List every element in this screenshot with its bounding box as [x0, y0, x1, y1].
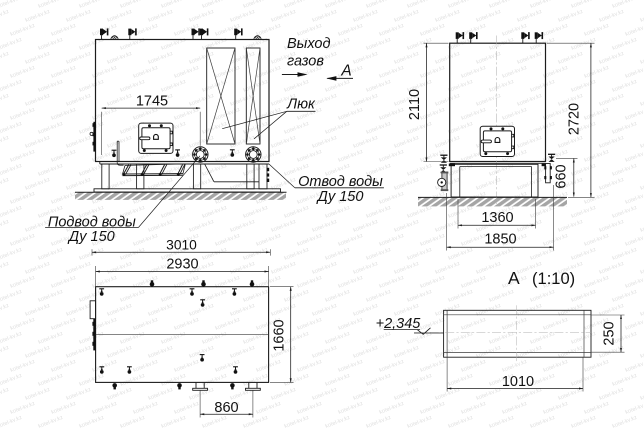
svg-text:kotel-kv.kz: kotel-kv.kz [435, 135, 462, 150]
svg-text:kotel-kv.kz: kotel-kv.kz [284, 373, 311, 388]
svg-text:860: 860 [214, 400, 238, 416]
svg-text:kotel-kv.kz: kotel-kv.kz [66, 9, 93, 24]
svg-text:kotel-kv.kz: kotel-kv.kz [640, 303, 644, 318]
svg-text:kotel-kv.kz: kotel-kv.kz [325, 247, 352, 262]
svg-text:kotel-kv.kz: kotel-kv.kz [625, 149, 644, 164]
svg-text:kotel-kv.kz: kotel-kv.kz [325, 331, 352, 346]
svg-text:kotel-kv.kz: kotel-kv.kz [133, 401, 160, 416]
svg-text:kotel-kv.kz: kotel-kv.kz [435, 261, 462, 276]
svg-text:kotel-kv.kz: kotel-kv.kz [189, 93, 216, 108]
svg-text:kotel-kv.kz: kotel-kv.kz [571, 79, 598, 94]
svg-text:kotel-kv.kz: kotel-kv.kz [338, 107, 365, 122]
svg-text:kotel-kv.kz: kotel-kv.kz [435, 51, 462, 66]
svg-text:kotel-kv.kz: kotel-kv.kz [0, 205, 23, 220]
svg-text:kotel-kv.kz: kotel-kv.kz [530, 37, 557, 52]
svg-text:kotel-kv.kz: kotel-kv.kz [174, 317, 201, 332]
svg-text:kotel-kv.kz: kotel-kv.kz [202, 415, 229, 430]
svg-text:kotel-kv.kz: kotel-kv.kz [161, 79, 188, 94]
svg-text:kotel-kv.kz: kotel-kv.kz [558, 219, 585, 234]
svg-text:kotel-kv.kz: kotel-kv.kz [202, 0, 229, 10]
svg-text:kotel-kv.kz: kotel-kv.kz [420, 107, 447, 122]
svg-text:kotel-kv.kz: kotel-kv.kz [448, 121, 475, 136]
svg-text:Выход: Выход [287, 36, 331, 52]
svg-text:kotel-kv.kz: kotel-kv.kz [0, 415, 23, 430]
svg-text:kotel-kv.kz: kotel-kv.kz [489, 331, 516, 346]
svg-text:kotel-kv.kz: kotel-kv.kz [25, 9, 52, 24]
svg-text:kotel-kv.kz: kotel-kv.kz [284, 247, 311, 262]
svg-text:kotel-kv.kz: kotel-kv.kz [312, 135, 339, 150]
svg-text:kotel-kv.kz: kotel-kv.kz [530, 415, 557, 430]
svg-text:kotel-kv.kz: kotel-kv.kz [543, 359, 570, 374]
svg-text:kotel-kv.kz: kotel-kv.kz [284, 331, 311, 346]
svg-text:kotel-kv.kz: kotel-kv.kz [366, 79, 393, 94]
svg-text:kotel-kv.kz: kotel-kv.kz [394, 9, 421, 24]
svg-text:kotel-kv.kz: kotel-kv.kz [312, 345, 339, 360]
svg-text:kotel-kv.kz: kotel-kv.kz [284, 79, 311, 94]
svg-text:kotel-kv.kz: kotel-kv.kz [243, 289, 270, 304]
svg-text:kotel-kv.kz: kotel-kv.kz [476, 51, 503, 66]
svg-text:kotel-kv.kz: kotel-kv.kz [0, 303, 10, 318]
svg-text:kotel-kv.kz: kotel-kv.kz [312, 303, 339, 318]
svg-text:1850: 1850 [484, 232, 516, 248]
svg-text:kotel-kv.kz: kotel-kv.kz [148, 345, 175, 360]
svg-text:kotel-kv.kz: kotel-kv.kz [10, 317, 37, 332]
svg-text:kotel-kv.kz: kotel-kv.kz [312, 387, 339, 402]
svg-text:kotel-kv.kz: kotel-kv.kz [435, 9, 462, 24]
svg-text:kotel-kv.kz: kotel-kv.kz [640, 387, 644, 402]
svg-text:kotel-kv.kz: kotel-kv.kz [38, 163, 65, 178]
svg-text:kotel-kv.kz: kotel-kv.kz [230, 303, 257, 318]
svg-text:kotel-kv.kz: kotel-kv.kz [448, 289, 475, 304]
svg-text:kotel-kv.kz: kotel-kv.kz [284, 415, 311, 430]
svg-text:kotel-kv.kz: kotel-kv.kz [189, 9, 216, 24]
svg-text:kotel-kv.kz: kotel-kv.kz [133, 275, 160, 290]
svg-text:kotel-kv.kz: kotel-kv.kz [174, 359, 201, 374]
svg-text:kotel-kv.kz: kotel-kv.kz [202, 79, 229, 94]
svg-text:kotel-kv.kz: kotel-kv.kz [10, 149, 37, 164]
svg-text:kotel-kv.kz: kotel-kv.kz [230, 261, 257, 276]
svg-text:kotel-kv.kz: kotel-kv.kz [325, 79, 352, 94]
svg-text:kotel-kv.kz: kotel-kv.kz [640, 135, 644, 150]
svg-text:kotel-kv.kz: kotel-kv.kz [571, 289, 598, 304]
svg-text:kotel-kv.kz: kotel-kv.kz [107, 9, 134, 24]
svg-text:1745: 1745 [136, 93, 168, 109]
svg-text:kotel-kv.kz: kotel-kv.kz [448, 79, 475, 94]
svg-text:kotel-kv.kz: kotel-kv.kz [79, 331, 106, 346]
svg-text:kotel-kv.kz: kotel-kv.kz [25, 261, 52, 276]
svg-text:kotel-kv.kz: kotel-kv.kz [51, 107, 78, 122]
svg-text:kotel-kv.kz: kotel-kv.kz [189, 177, 216, 192]
svg-text:kotel-kv.kz: kotel-kv.kz [230, 177, 257, 192]
svg-text:kotel-kv.kz: kotel-kv.kz [79, 163, 106, 178]
svg-text:kotel-kv.kz: kotel-kv.kz [271, 387, 298, 402]
svg-text:kotel-kv.kz: kotel-kv.kz [256, 233, 283, 248]
svg-text:kotel-kv.kz: kotel-kv.kz [625, 107, 644, 122]
svg-text:kotel-kv.kz: kotel-kv.kz [25, 177, 52, 192]
svg-text:kotel-kv.kz: kotel-kv.kz [161, 205, 188, 220]
svg-text:kotel-kv.kz: kotel-kv.kz [558, 9, 585, 24]
svg-text:kotel-kv.kz: kotel-kv.kz [571, 37, 598, 52]
svg-text:kotel-kv.kz: kotel-kv.kz [79, 79, 106, 94]
svg-text:kotel-kv.kz: kotel-kv.kz [230, 345, 257, 360]
svg-text:kotel-kv.kz: kotel-kv.kz [107, 345, 134, 360]
svg-text:kotel-kv.kz: kotel-kv.kz [379, 275, 406, 290]
svg-text:kotel-kv.kz: kotel-kv.kz [0, 51, 10, 66]
svg-text:kotel-kv.kz: kotel-kv.kz [353, 219, 380, 234]
svg-text:kotel-kv.kz: kotel-kv.kz [543, 149, 570, 164]
svg-text:kotel-kv.kz: kotel-kv.kz [10, 401, 37, 416]
svg-text:1660: 1660 [271, 319, 287, 351]
svg-text:kotel-kv.kz: kotel-kv.kz [38, 121, 65, 136]
svg-text:kotel-kv.kz: kotel-kv.kz [107, 303, 134, 318]
svg-text:kotel-kv.kz: kotel-kv.kz [284, 205, 311, 220]
svg-text:kotel-kv.kz: kotel-kv.kz [271, 177, 298, 192]
svg-text:kotel-kv.kz: kotel-kv.kz [584, 23, 611, 38]
svg-text:kotel-kv.kz: kotel-kv.kz [571, 163, 598, 178]
svg-text:kotel-kv.kz: kotel-kv.kz [38, 331, 65, 346]
svg-text:kotel-kv.kz: kotel-kv.kz [79, 373, 106, 388]
svg-text:kotel-kv.kz: kotel-kv.kz [599, 135, 626, 150]
svg-text:kotel-kv.kz: kotel-kv.kz [297, 275, 324, 290]
svg-text:kotel-kv.kz: kotel-kv.kz [10, 107, 37, 122]
svg-text:kotel-kv.kz: kotel-kv.kz [379, 233, 406, 248]
svg-text:kotel-kv.kz: kotel-kv.kz [243, 373, 270, 388]
svg-text:kotel-kv.kz: kotel-kv.kz [161, 0, 188, 10]
svg-text:kotel-kv.kz: kotel-kv.kz [394, 177, 421, 192]
svg-text:kotel-kv.kz: kotel-kv.kz [0, 219, 10, 234]
svg-text:kotel-kv.kz: kotel-kv.kz [461, 275, 488, 290]
svg-text:kotel-kv.kz: kotel-kv.kz [25, 387, 52, 402]
svg-text:kotel-kv.kz: kotel-kv.kz [51, 401, 78, 416]
svg-text:kotel-kv.kz: kotel-kv.kz [640, 51, 644, 66]
svg-text:kotel-kv.kz: kotel-kv.kz [66, 387, 93, 402]
svg-text:kotel-kv.kz: kotel-kv.kz [0, 331, 23, 346]
svg-text:kotel-kv.kz: kotel-kv.kz [215, 317, 242, 332]
svg-text:kotel-kv.kz: kotel-kv.kz [394, 261, 421, 276]
svg-text:660: 660 [554, 164, 570, 188]
svg-text:kotel-kv.kz: kotel-kv.kz [517, 51, 544, 66]
svg-text:kotel-kv.kz: kotel-kv.kz [530, 331, 557, 346]
svg-text:kotel-kv.kz: kotel-kv.kz [202, 289, 229, 304]
svg-text:kotel-kv.kz: kotel-kv.kz [148, 219, 175, 234]
svg-text:kotel-kv.kz: kotel-kv.kz [271, 261, 298, 276]
svg-text:kotel-kv.kz: kotel-kv.kz [435, 387, 462, 402]
svg-text:kotel-kv.kz: kotel-kv.kz [38, 79, 65, 94]
svg-text:kotel-kv.kz: kotel-kv.kz [271, 219, 298, 234]
svg-text:kotel-kv.kz: kotel-kv.kz [312, 261, 339, 276]
svg-text:kotel-kv.kz: kotel-kv.kz [25, 93, 52, 108]
svg-text:kotel-kv.kz: kotel-kv.kz [120, 331, 147, 346]
svg-text:kotel-kv.kz: kotel-kv.kz [599, 177, 626, 192]
svg-text:kotel-kv.kz: kotel-kv.kz [571, 415, 598, 430]
svg-text:kotel-kv.kz: kotel-kv.kz [107, 51, 134, 66]
svg-text:kotel-kv.kz: kotel-kv.kz [120, 247, 147, 262]
svg-text:kotel-kv.kz: kotel-kv.kz [353, 261, 380, 276]
svg-text:kotel-kv.kz: kotel-kv.kz [625, 191, 644, 206]
svg-text:kotel-kv.kz: kotel-kv.kz [584, 107, 611, 122]
svg-text:kotel-kv.kz: kotel-kv.kz [133, 65, 160, 80]
svg-text:kotel-kv.kz: kotel-kv.kz [51, 65, 78, 80]
svg-text:kotel-kv.kz: kotel-kv.kz [325, 205, 352, 220]
svg-text:kotel-kv.kz: kotel-kv.kz [0, 0, 23, 10]
svg-text:kotel-kv.kz: kotel-kv.kz [476, 261, 503, 276]
svg-text:kotel-kv.kz: kotel-kv.kz [66, 51, 93, 66]
svg-text:kotel-kv.kz: kotel-kv.kz [256, 401, 283, 416]
svg-text:kotel-kv.kz: kotel-kv.kz [599, 51, 626, 66]
svg-text:kotel-kv.kz: kotel-kv.kz [379, 65, 406, 80]
svg-text:kotel-kv.kz: kotel-kv.kz [435, 93, 462, 108]
svg-text:kotel-kv.kz: kotel-kv.kz [79, 415, 106, 430]
svg-text:kotel-kv.kz: kotel-kv.kz [38, 415, 65, 430]
svg-text:kotel-kv.kz: kotel-kv.kz [92, 401, 119, 416]
svg-text:kotel-kv.kz: kotel-kv.kz [407, 247, 434, 262]
svg-text:kotel-kv.kz: kotel-kv.kz [571, 373, 598, 388]
svg-text:kotel-kv.kz: kotel-kv.kz [502, 107, 529, 122]
svg-text:kotel-kv.kz: kotel-kv.kz [10, 65, 37, 80]
svg-text:kotel-kv.kz: kotel-kv.kz [517, 9, 544, 24]
svg-text:kotel-kv.kz: kotel-kv.kz [148, 9, 175, 24]
svg-text:kotel-kv.kz: kotel-kv.kz [461, 233, 488, 248]
svg-text:2720: 2720 [567, 103, 583, 135]
svg-text:kotel-kv.kz: kotel-kv.kz [543, 65, 570, 80]
svg-text:kotel-kv.kz: kotel-kv.kz [120, 0, 147, 10]
svg-text:kotel-kv.kz: kotel-kv.kz [256, 23, 283, 38]
svg-text:kotel-kv.kz: kotel-kv.kz [584, 401, 611, 416]
svg-text:kotel-kv.kz: kotel-kv.kz [379, 23, 406, 38]
svg-text:kotel-kv.kz: kotel-kv.kz [202, 247, 229, 262]
svg-text:kotel-kv.kz: kotel-kv.kz [448, 373, 475, 388]
svg-text:kotel-kv.kz: kotel-kv.kz [640, 93, 644, 108]
svg-text:kotel-kv.kz: kotel-kv.kz [174, 401, 201, 416]
svg-text:kotel-kv.kz: kotel-kv.kz [79, 121, 106, 136]
svg-text:kotel-kv.kz: kotel-kv.kz [517, 177, 544, 192]
svg-text:kotel-kv.kz: kotel-kv.kz [297, 233, 324, 248]
svg-text:kotel-kv.kz: kotel-kv.kz [640, 177, 644, 192]
svg-text:kotel-kv.kz: kotel-kv.kz [584, 65, 611, 80]
svg-text:kotel-kv.kz: kotel-kv.kz [0, 373, 23, 388]
svg-text:kotel-kv.kz: kotel-kv.kz [420, 317, 447, 332]
svg-text:kotel-kv.kz: kotel-kv.kz [571, 247, 598, 262]
svg-text:kotel-kv.kz: kotel-kv.kz [502, 317, 529, 332]
svg-text:1010: 1010 [502, 374, 534, 390]
svg-text:kotel-kv.kz: kotel-kv.kz [517, 219, 544, 234]
svg-text:kotel-kv.kz: kotel-kv.kz [0, 37, 23, 52]
svg-text:kotel-kv.kz: kotel-kv.kz [0, 247, 23, 262]
svg-text:газов: газов [287, 54, 324, 70]
svg-text:kotel-kv.kz: kotel-kv.kz [489, 289, 516, 304]
svg-text:kotel-kv.kz: kotel-kv.kz [230, 219, 257, 234]
svg-text:kotel-kv.kz: kotel-kv.kz [502, 65, 529, 80]
svg-text:kotel-kv.kz: kotel-kv.kz [599, 93, 626, 108]
svg-text:kotel-kv.kz: kotel-kv.kz [489, 415, 516, 430]
svg-text:kotel-kv.kz: kotel-kv.kz [379, 149, 406, 164]
svg-text:kotel-kv.kz: kotel-kv.kz [420, 65, 447, 80]
svg-text:kotel-kv.kz: kotel-kv.kz [366, 415, 393, 430]
svg-text:kotel-kv.kz: kotel-kv.kz [448, 0, 475, 10]
svg-text:kotel-kv.kz: kotel-kv.kz [51, 359, 78, 374]
svg-text:3010: 3010 [166, 237, 197, 252]
svg-text:kotel-kv.kz: kotel-kv.kz [489, 37, 516, 52]
svg-text:kotel-kv.kz: kotel-kv.kz [420, 401, 447, 416]
svg-text:2930: 2930 [166, 257, 198, 273]
svg-text:kotel-kv.kz: kotel-kv.kz [148, 51, 175, 66]
svg-text:kotel-kv.kz: kotel-kv.kz [502, 359, 529, 374]
svg-text:kotel-kv.kz: kotel-kv.kz [599, 387, 626, 402]
svg-text:kotel-kv.kz: kotel-kv.kz [215, 275, 242, 290]
svg-text:kotel-kv.kz: kotel-kv.kz [10, 23, 37, 38]
svg-text:Ду 150: Ду 150 [67, 229, 115, 245]
svg-text:kotel-kv.kz: kotel-kv.kz [107, 93, 134, 108]
svg-text:kotel-kv.kz: kotel-kv.kz [325, 121, 352, 136]
svg-text:kotel-kv.kz: kotel-kv.kz [366, 247, 393, 262]
svg-text:kotel-kv.kz: kotel-kv.kz [366, 373, 393, 388]
svg-text:kotel-kv.kz: kotel-kv.kz [640, 345, 644, 360]
svg-text:kotel-kv.kz: kotel-kv.kz [530, 79, 557, 94]
svg-text:250: 250 [601, 321, 617, 345]
svg-text:kotel-kv.kz: kotel-kv.kz [584, 149, 611, 164]
svg-text:kotel-kv.kz: kotel-kv.kz [174, 275, 201, 290]
svg-text:kotel-kv.kz: kotel-kv.kz [325, 373, 352, 388]
svg-text:kotel-kv.kz: kotel-kv.kz [420, 275, 447, 290]
svg-text:kotel-kv.kz: kotel-kv.kz [558, 51, 585, 66]
svg-text:kotel-kv.kz: kotel-kv.kz [107, 177, 134, 192]
svg-text:kotel-kv.kz: kotel-kv.kz [407, 121, 434, 136]
svg-text:kotel-kv.kz: kotel-kv.kz [271, 135, 298, 150]
svg-text:kotel-kv.kz: kotel-kv.kz [202, 331, 229, 346]
svg-text:kotel-kv.kz: kotel-kv.kz [312, 9, 339, 24]
svg-text:kotel-kv.kz: kotel-kv.kz [161, 331, 188, 346]
svg-text:kotel-kv.kz: kotel-kv.kz [297, 359, 324, 374]
svg-text:kotel-kv.kz: kotel-kv.kz [599, 219, 626, 234]
svg-text:kotel-kv.kz: kotel-kv.kz [325, 415, 352, 430]
svg-text:kotel-kv.kz: kotel-kv.kz [394, 387, 421, 402]
svg-text:kotel-kv.kz: kotel-kv.kz [312, 93, 339, 108]
svg-text:kotel-kv.kz: kotel-kv.kz [353, 387, 380, 402]
svg-text:kotel-kv.kz: kotel-kv.kz [612, 37, 639, 52]
svg-text:kotel-kv.kz: kotel-kv.kz [640, 261, 644, 276]
svg-text:kotel-kv.kz: kotel-kv.kz [543, 233, 570, 248]
svg-text:kotel-kv.kz: kotel-kv.kz [0, 289, 23, 304]
svg-text:kotel-kv.kz: kotel-kv.kz [366, 205, 393, 220]
svg-text:kotel-kv.kz: kotel-kv.kz [612, 247, 639, 262]
svg-text:kotel-kv.kz: kotel-kv.kz [107, 135, 134, 150]
svg-text:kotel-kv.kz: kotel-kv.kz [161, 373, 188, 388]
svg-text:kotel-kv.kz: kotel-kv.kz [66, 135, 93, 150]
svg-text:kotel-kv.kz: kotel-kv.kz [120, 415, 147, 430]
svg-text:kotel-kv.kz: kotel-kv.kz [38, 0, 65, 10]
svg-text:kotel-kv.kz: kotel-kv.kz [120, 79, 147, 94]
svg-text:kotel-kv.kz: kotel-kv.kz [571, 0, 598, 10]
svg-text:kotel-kv.kz: kotel-kv.kz [379, 191, 406, 206]
svg-text:kotel-kv.kz: kotel-kv.kz [0, 121, 23, 136]
svg-text:kotel-kv.kz: kotel-kv.kz [640, 219, 644, 234]
svg-text:kotel-kv.kz: kotel-kv.kz [353, 135, 380, 150]
svg-text:kotel-kv.kz: kotel-kv.kz [530, 205, 557, 220]
svg-text:kotel-kv.kz: kotel-kv.kz [66, 93, 93, 108]
svg-text:kotel-kv.kz: kotel-kv.kz [407, 205, 434, 220]
svg-text:kotel-kv.kz: kotel-kv.kz [394, 345, 421, 360]
svg-text:kotel-kv.kz: kotel-kv.kz [312, 219, 339, 234]
svg-text:kotel-kv.kz: kotel-kv.kz [338, 359, 365, 374]
svg-text:kotel-kv.kz: kotel-kv.kz [448, 331, 475, 346]
svg-text:kotel-kv.kz: kotel-kv.kz [530, 0, 557, 10]
svg-text:kotel-kv.kz: kotel-kv.kz [120, 289, 147, 304]
svg-text:kotel-kv.kz: kotel-kv.kz [489, 247, 516, 262]
svg-text:kotel-kv.kz: kotel-kv.kz [0, 9, 10, 24]
svg-text:kotel-kv.kz: kotel-kv.kz [420, 23, 447, 38]
svg-text:kotel-kv.kz: kotel-kv.kz [79, 0, 106, 10]
svg-text:kotel-kv.kz: kotel-kv.kz [489, 79, 516, 94]
svg-text:(1:10): (1:10) [532, 270, 575, 288]
svg-text:2110: 2110 [407, 89, 423, 120]
svg-text:kotel-kv.kz: kotel-kv.kz [148, 387, 175, 402]
svg-text:kotel-kv.kz: kotel-kv.kz [148, 303, 175, 318]
svg-text:kotel-kv.kz: kotel-kv.kz [297, 317, 324, 332]
svg-text:kotel-kv.kz: kotel-kv.kz [51, 149, 78, 164]
svg-text:kotel-kv.kz: kotel-kv.kz [420, 359, 447, 374]
svg-text:kotel-kv.kz: kotel-kv.kz [407, 373, 434, 388]
svg-text:kotel-kv.kz: kotel-kv.kz [625, 275, 644, 290]
svg-text:kotel-kv.kz: kotel-kv.kz [51, 191, 78, 206]
svg-text:kotel-kv.kz: kotel-kv.kz [338, 401, 365, 416]
svg-text:kotel-kv.kz: kotel-kv.kz [530, 121, 557, 136]
svg-text:kotel-kv.kz: kotel-kv.kz [174, 65, 201, 80]
svg-text:kotel-kv.kz: kotel-kv.kz [407, 415, 434, 430]
svg-text:1360: 1360 [481, 210, 513, 226]
svg-text:kotel-kv.kz: kotel-kv.kz [284, 121, 311, 136]
svg-text:kotel-kv.kz: kotel-kv.kz [38, 247, 65, 262]
svg-text:kotel-kv.kz: kotel-kv.kz [476, 177, 503, 192]
svg-text:kotel-kv.kz: kotel-kv.kz [51, 317, 78, 332]
svg-text:kotel-kv.kz: kotel-kv.kz [338, 233, 365, 248]
svg-text:kotel-kv.kz: kotel-kv.kz [161, 289, 188, 304]
svg-text:kotel-kv.kz: kotel-kv.kz [10, 233, 37, 248]
svg-text:kotel-kv.kz: kotel-kv.kz [51, 23, 78, 38]
svg-text:kotel-kv.kz: kotel-kv.kz [107, 261, 134, 276]
svg-text:kotel-kv.kz: kotel-kv.kz [202, 373, 229, 388]
svg-text:kotel-kv.kz: kotel-kv.kz [625, 401, 644, 416]
svg-text:kotel-kv.kz: kotel-kv.kz [625, 359, 644, 374]
svg-text:kotel-kv.kz: kotel-kv.kz [530, 247, 557, 262]
svg-text:kotel-kv.kz: kotel-kv.kz [284, 289, 311, 304]
svg-text:kotel-kv.kz: kotel-kv.kz [379, 107, 406, 122]
svg-text:kotel-kv.kz: kotel-kv.kz [394, 135, 421, 150]
svg-text:kotel-kv.kz: kotel-kv.kz [38, 373, 65, 388]
svg-text:kotel-kv.kz: kotel-kv.kz [612, 289, 639, 304]
svg-text:kotel-kv.kz: kotel-kv.kz [625, 23, 644, 38]
svg-text:kotel-kv.kz: kotel-kv.kz [612, 205, 639, 220]
svg-text:kotel-kv.kz: kotel-kv.kz [353, 9, 380, 24]
svg-text:kotel-kv.kz: kotel-kv.kz [161, 415, 188, 430]
svg-text:kotel-kv.kz: kotel-kv.kz [51, 275, 78, 290]
svg-text:kotel-kv.kz: kotel-kv.kz [25, 303, 52, 318]
svg-text:kotel-kv.kz: kotel-kv.kz [584, 275, 611, 290]
svg-text:kotel-kv.kz: kotel-kv.kz [297, 149, 324, 164]
svg-text:kotel-kv.kz: kotel-kv.kz [66, 177, 93, 192]
svg-text:kotel-kv.kz: kotel-kv.kz [338, 317, 365, 332]
svg-text:kotel-kv.kz: kotel-kv.kz [612, 121, 639, 136]
svg-text:kotel-kv.kz: kotel-kv.kz [476, 9, 503, 24]
svg-text:kotel-kv.kz: kotel-kv.kz [407, 37, 434, 52]
svg-text:kotel-kv.kz: kotel-kv.kz [338, 149, 365, 164]
svg-text:kotel-kv.kz: kotel-kv.kz [612, 373, 639, 388]
svg-text:kotel-kv.kz: kotel-kv.kz [625, 317, 644, 332]
svg-text:kotel-kv.kz: kotel-kv.kz [543, 23, 570, 38]
svg-text:kotel-kv.kz: kotel-kv.kz [325, 289, 352, 304]
svg-text:kotel-kv.kz: kotel-kv.kz [243, 415, 270, 430]
svg-text:kotel-kv.kz: kotel-kv.kz [271, 303, 298, 318]
svg-text:kotel-kv.kz: kotel-kv.kz [0, 163, 23, 178]
